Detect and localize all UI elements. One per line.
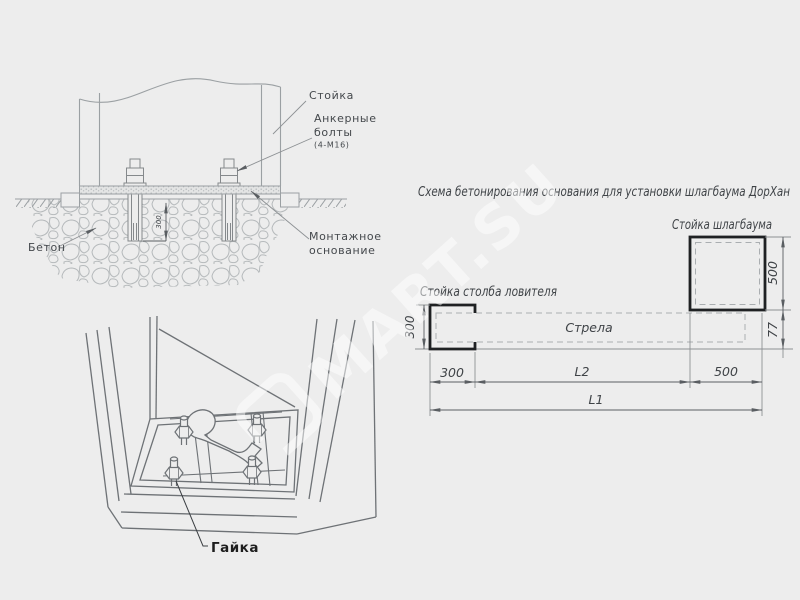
barrier-post-dashed-inner [696,243,760,305]
anchor-bolts-spec: (4-М16) [314,141,350,150]
ground-hatch-right [299,200,346,209]
mounting-base-label: Монтажное основание [309,230,382,257]
post-walls [80,79,281,186]
post-label: Стойка [309,89,354,102]
barrier-post-square [690,237,765,310]
drawing-canvas: 300 Стойка Анкерные болты (4-М16) Бетон … [0,0,800,600]
dim-barrier-height: 500 [765,261,780,285]
dim-l2: L2 [575,364,590,379]
concrete-area [28,199,290,288]
svg-text:болты: болты [314,126,353,139]
dim-l1: L1 [589,392,604,407]
dim-barrier-width: 500 [714,364,738,379]
drawing-title: Схема бетонирования основания для устано… [418,185,790,200]
barrier-post-label: Стойка шлагбаума [672,218,772,233]
svg-text:основание: основание [309,244,375,257]
boom-label: Стрела [565,320,612,335]
embed-depth-text: 300 [155,215,163,229]
anchor-bolts-label: Анкерные болты (4-М16) [314,112,377,150]
concrete-label: Бетон [28,241,66,254]
svg-text:Монтажное: Монтажное [309,230,382,243]
technical-drawing-page: 300 Стойка Анкерные болты (4-М16) Бетон … [0,0,800,600]
break-line [80,79,281,103]
ground-hatch-left [15,200,61,209]
dim-catcher-width: 300 [440,365,464,380]
dim-boom-offset: 77 [765,322,780,338]
nut-label: Гайка [211,540,259,556]
section-view: 300 Стойка Анкерные болты (4-М16) Бетон … [15,79,382,288]
svg-text:Анкерные: Анкерные [314,112,377,125]
